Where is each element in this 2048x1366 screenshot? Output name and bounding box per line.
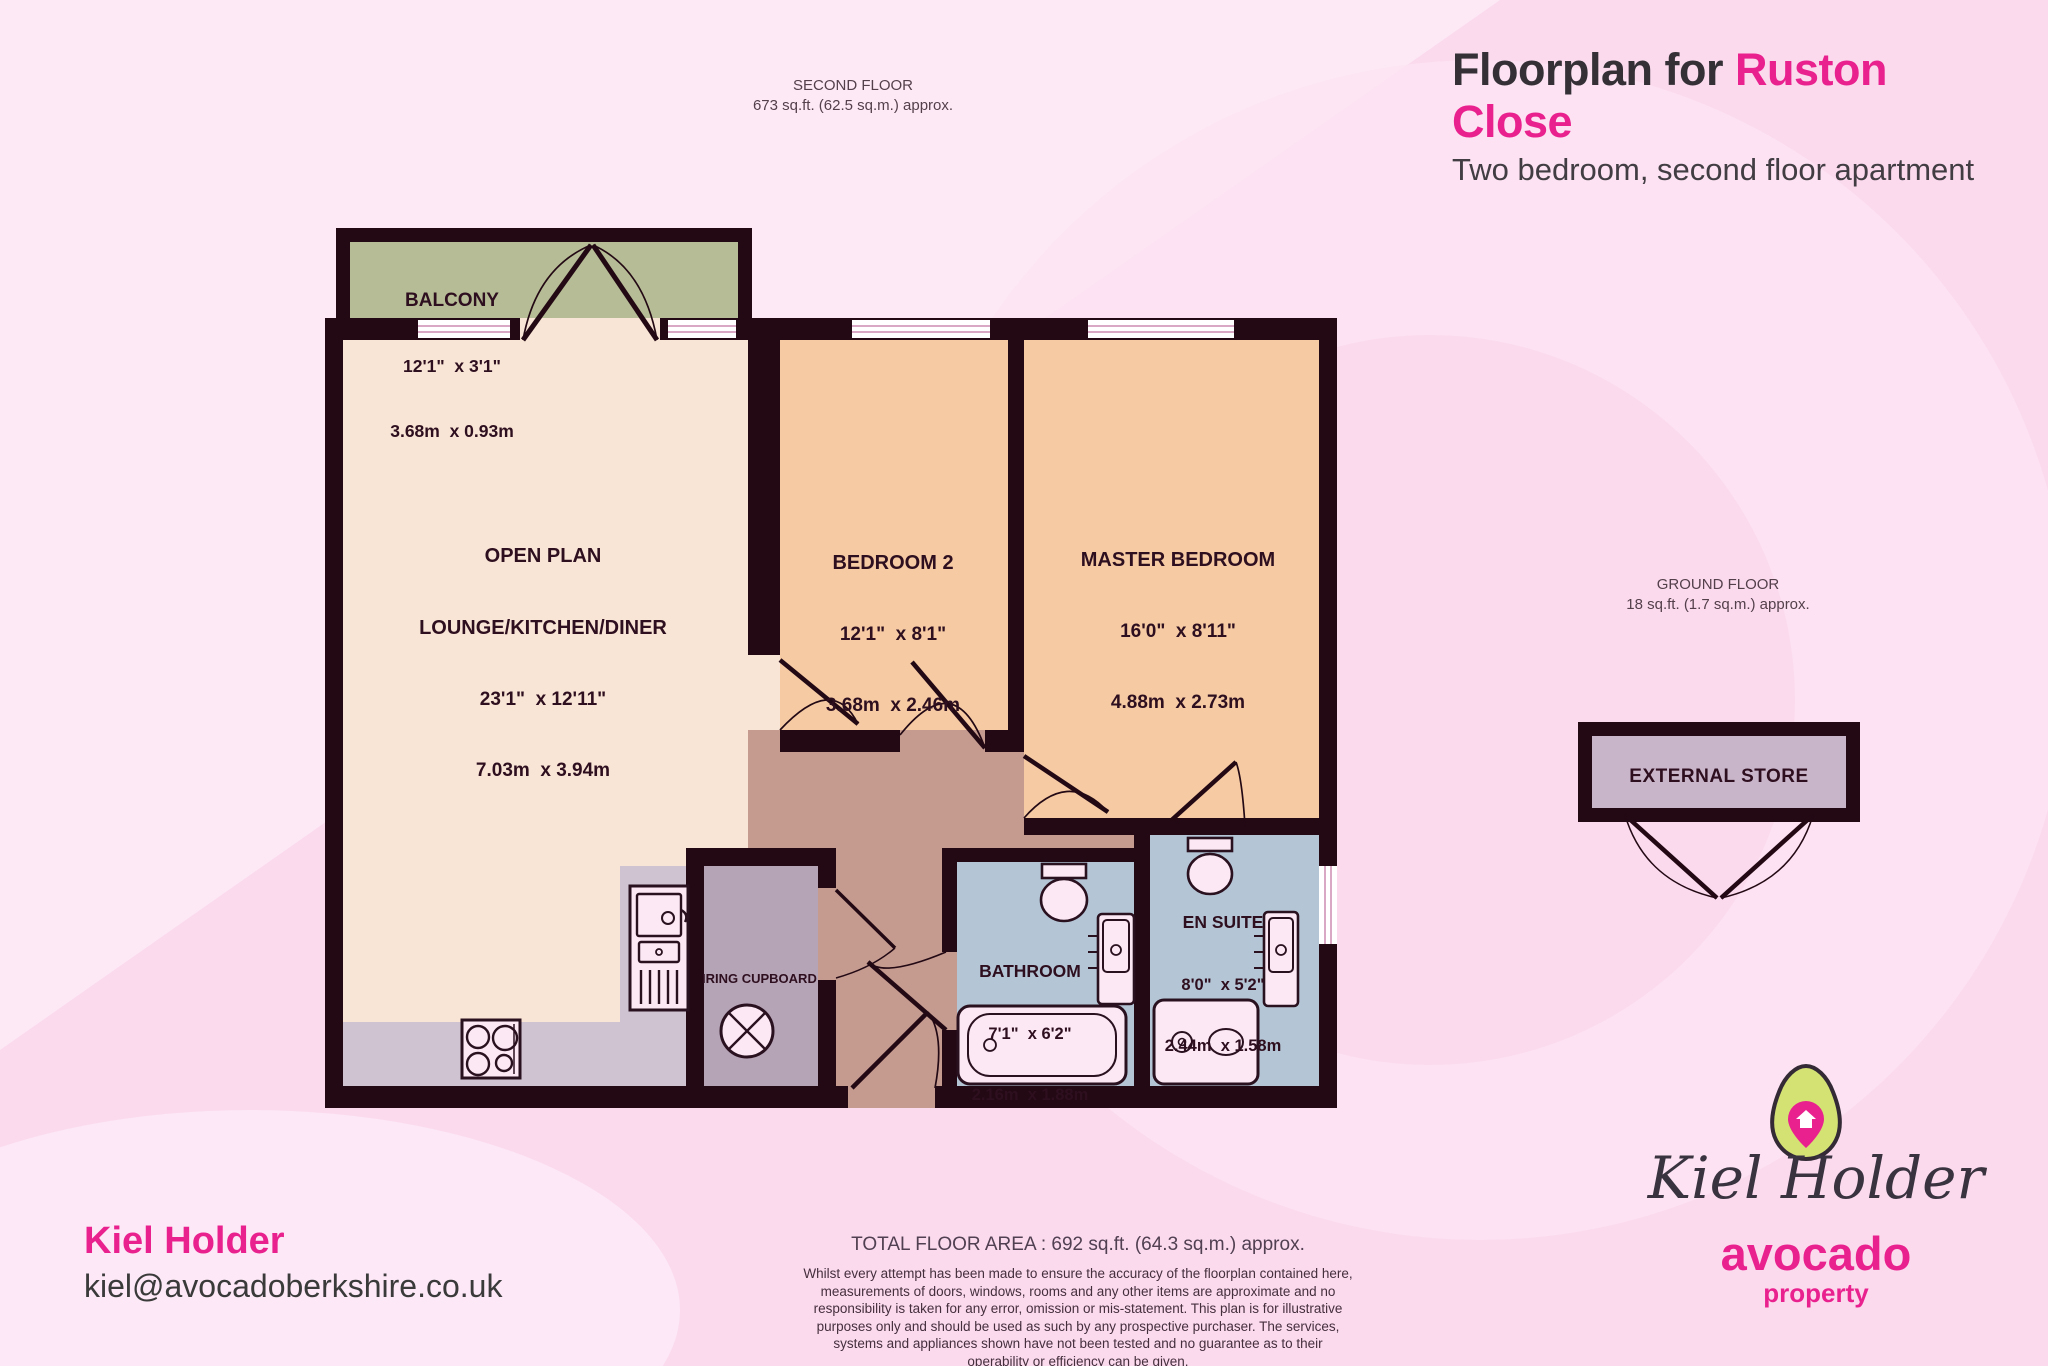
hob-icon [462, 1020, 520, 1078]
ensuite-name: EN SUITE [1142, 912, 1304, 934]
brand-tagline: property [1598, 1278, 2034, 1309]
bedroom2-label: BEDROOM 2 12'1" x 8'1" 3.68m x 2.46m [778, 504, 1008, 764]
second-floor-title: SECOND FLOOR [703, 76, 1003, 96]
lounge-name-1: OPEN PLAN [388, 544, 698, 569]
page-header: Floorplan for Ruston Close Two bedroom, … [1452, 44, 2012, 188]
bathroom-toilet-icon [1041, 864, 1087, 921]
agent-contact-block: Kiel Holder kiel@avocadoberkshire.co.uk [84, 1220, 502, 1305]
second-floor-caption: SECOND FLOOR 673 sq.ft. (62.5 sq.m.) app… [703, 76, 1003, 117]
lounge-label: OPEN PLAN LOUNGE/KITCHEN/DINER 23'1" x 1… [388, 497, 698, 829]
bedroom2-name: BEDROOM 2 [778, 551, 1008, 576]
title-prefix: Floorplan for [1452, 44, 1735, 95]
total-floor-area: TOTAL FLOOR AREA : 692 sq.ft. (64.3 sq.m… [788, 1234, 1368, 1256]
cylinder-fan-icon [721, 1005, 773, 1057]
disclaimer-text: Whilst every attempt has been made to en… [788, 1265, 1368, 1366]
bathroom-name: BATHROOM [950, 961, 1110, 983]
bathroom-imperial: 7'1" x 6'2" [950, 1024, 1110, 1044]
agent-name: Kiel Holder [84, 1220, 502, 1263]
ground-floor-area: 18 sq.ft. (1.7 sq.m.) approx. [1568, 595, 1868, 615]
ensuite-imperial: 8'0" x 5'2" [1142, 975, 1304, 995]
master-name: MASTER BEDROOM [1042, 548, 1314, 573]
ensuite-metric: 2.44m x 1.58m [1142, 1036, 1304, 1056]
ensuite-label: EN SUITE 8'0" x 5'2" 2.44m x 1.58m [1142, 871, 1304, 1097]
master-metric: 4.88m x 2.73m [1042, 691, 1314, 715]
balcony-metric: 3.68m x 0.93m [336, 421, 568, 443]
ground-floor-title: GROUND FLOOR [1568, 575, 1868, 595]
bathroom-metric: 2.16m x 1.88m [950, 1085, 1110, 1105]
hallway-strip [1024, 835, 1150, 848]
footer-block: TOTAL FLOOR AREA : 692 sq.ft. (64.3 sq.m… [788, 1234, 1368, 1366]
agent-email: kiel@avocadoberkshire.co.uk [84, 1268, 502, 1305]
bedroom2-metric: 3.68m x 2.46m [778, 694, 1008, 718]
passage-lounge-hall [748, 655, 780, 730]
page-subtitle: Two bedroom, second floor apartment [1452, 152, 2012, 188]
kitchen-sink-icon [630, 886, 688, 1010]
bathroom-label: BATHROOM 7'1" x 6'2" 2.16m x 1.88m [950, 920, 1110, 1146]
balcony-name: BALCONY [336, 289, 568, 313]
balcony-label: BALCONY 12'1" x 3'1" 3.68m x 0.93m [336, 246, 568, 486]
balcony-imperial: 12'1" x 3'1" [336, 356, 568, 378]
second-floor-area: 673 sq.ft. (62.5 sq.m.) approx. [703, 96, 1003, 116]
passage-entrance [848, 1086, 935, 1108]
ground-floor-caption: GROUND FLOOR 18 sq.ft. (1.7 sq.m.) appro… [1568, 575, 1868, 616]
bedroom2-imperial: 12'1" x 8'1" [778, 623, 1008, 647]
brand-name: avocado [1598, 1226, 2034, 1281]
floorplan-page: SECOND FLOOR 673 sq.ft. (62.5 sq.m.) app… [0, 0, 2048, 1366]
external-store-label: EXTERNAL STORE [1592, 765, 1846, 789]
master-imperial: 16'0" x 8'11" [1042, 620, 1314, 644]
master-bedroom-label: MASTER BEDROOM 16'0" x 8'11" 4.88m x 2.7… [1042, 501, 1314, 761]
lounge-imperial: 23'1" x 12'11" [388, 688, 698, 712]
lounge-metric: 7.03m x 3.94m [388, 759, 698, 783]
page-title: Floorplan for Ruston Close [1452, 44, 2012, 148]
airing-cupboard-label: IRING CUPBOARD [702, 971, 822, 987]
lounge-name-2: LOUNGE/KITCHEN/DINER [388, 616, 698, 641]
brand-signature: Kiel Holder [1598, 1144, 2034, 1212]
